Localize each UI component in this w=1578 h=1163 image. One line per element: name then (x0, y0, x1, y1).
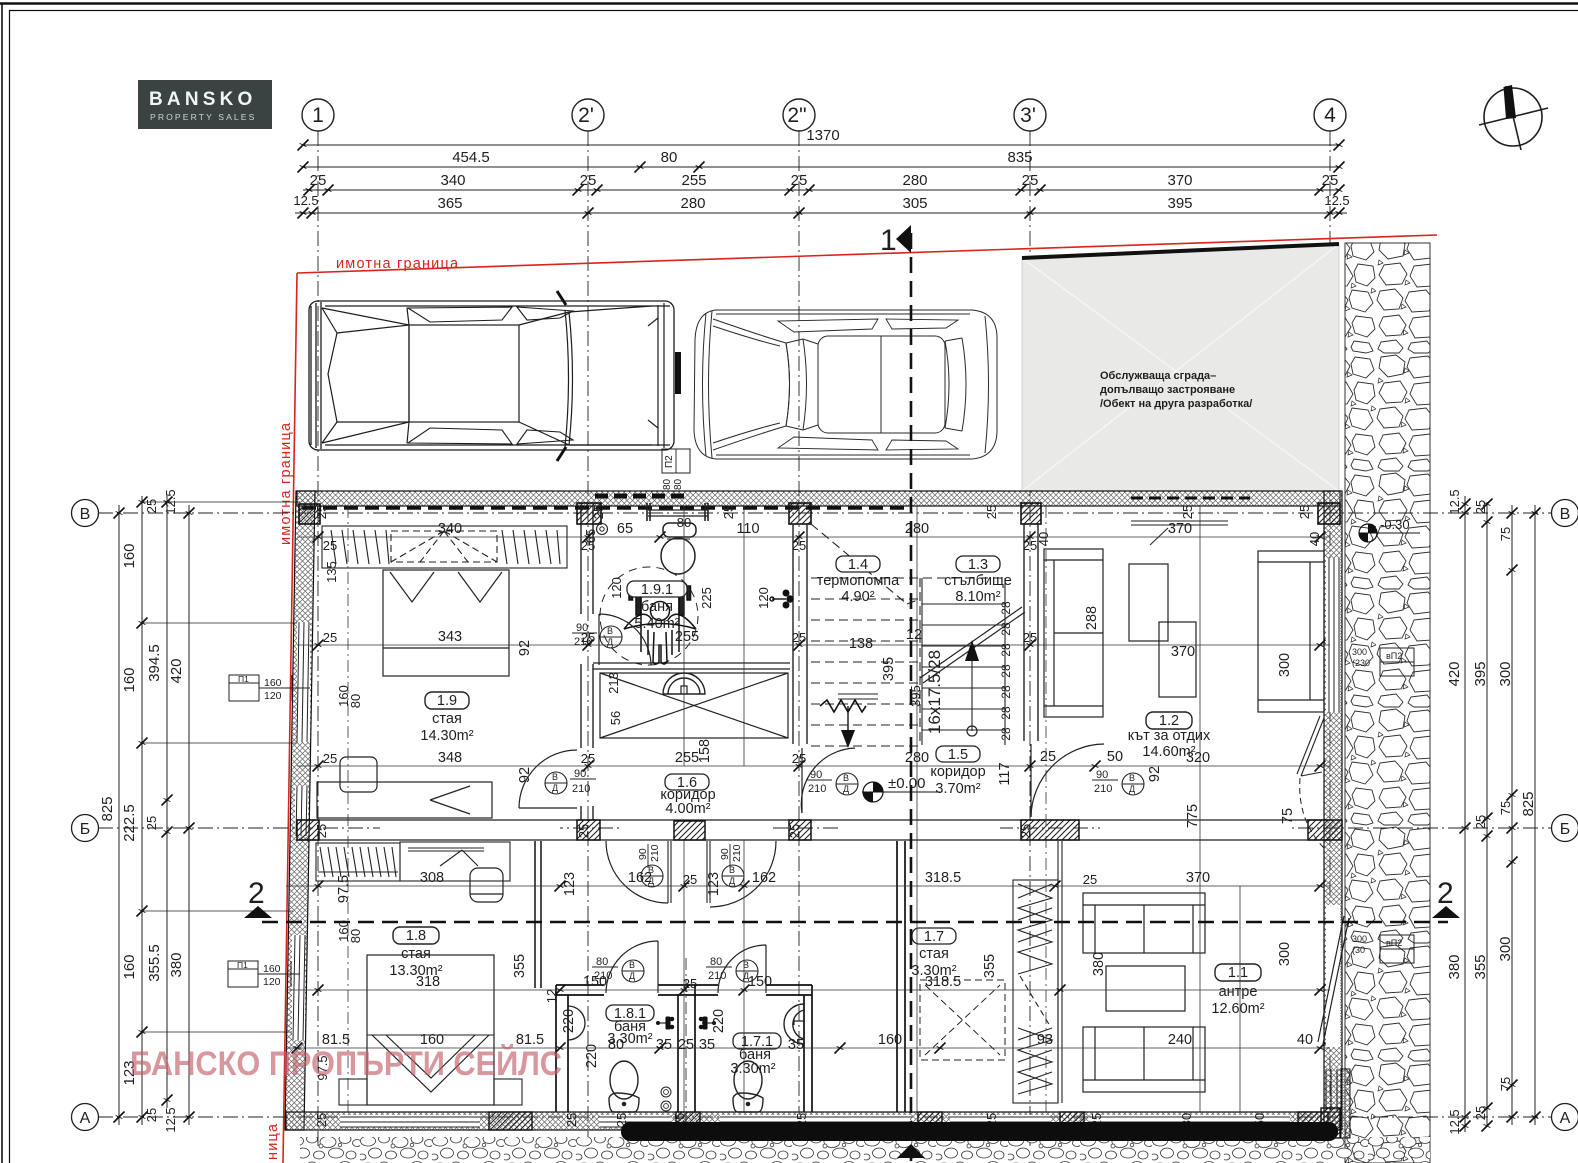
svg-text:В: В (1129, 773, 1135, 783)
svg-text:75: 75 (1498, 527, 1513, 541)
svg-text:3': 3' (1020, 104, 1036, 127)
svg-text:25: 25 (721, 505, 736, 519)
svg-text:825: 825 (99, 796, 116, 821)
svg-text:ница: ница (265, 1123, 281, 1160)
svg-text:210: 210 (808, 783, 826, 795)
svg-text:305: 305 (902, 195, 927, 212)
svg-text:25: 25 (678, 1037, 694, 1053)
svg-text:255: 255 (675, 750, 699, 766)
svg-text:380: 380 (1446, 954, 1463, 979)
svg-text:В: В (1560, 506, 1571, 523)
svg-text:25: 25 (1083, 872, 1097, 887)
svg-text:160: 160 (263, 963, 281, 975)
svg-text:25: 25 (1022, 172, 1039, 189)
svg-text:75: 75 (1498, 1077, 1513, 1091)
svg-text:В: В (80, 506, 91, 523)
svg-text:162: 162 (752, 870, 776, 886)
svg-text:775: 775 (1185, 804, 1201, 828)
svg-text:28: 28 (999, 601, 1013, 615)
svg-text:12.5: 12.5 (1447, 489, 1462, 514)
svg-text:210: 210 (1094, 783, 1112, 795)
svg-text:1.9: 1.9 (437, 693, 457, 709)
svg-text:80: 80 (608, 1037, 624, 1053)
svg-text:25: 25 (310, 172, 327, 189)
svg-text:25: 25 (791, 172, 808, 189)
svg-text:В: В (552, 772, 558, 782)
svg-text:25: 25 (323, 630, 337, 645)
svg-text:стълбище: стълбище (944, 573, 1012, 589)
svg-text:395: 395 (1167, 195, 1192, 212)
svg-text:25: 25 (581, 630, 595, 645)
svg-text:162: 162 (628, 870, 652, 886)
svg-text:антре: антре (1219, 984, 1258, 1000)
svg-text:1.8: 1.8 (406, 928, 426, 944)
svg-text:25: 25 (1023, 538, 1037, 553)
svg-text:210: 210 (572, 783, 590, 795)
svg-text:120: 120 (263, 976, 281, 988)
svg-text:А: А (80, 1110, 91, 1127)
svg-text:355.5: 355.5 (146, 944, 163, 982)
svg-text:термопомпа: термопомпа (817, 573, 900, 589)
svg-text:160: 160 (878, 1032, 902, 1048)
svg-text:12.5: 12.5 (293, 193, 318, 208)
svg-text:340: 340 (438, 521, 462, 537)
svg-text:138: 138 (849, 636, 873, 652)
svg-text:255: 255 (681, 172, 706, 189)
svg-text:25: 25 (580, 172, 597, 189)
svg-text:стая: стая (432, 711, 462, 727)
svg-text:210: 210 (731, 844, 743, 862)
svg-text:40: 40 (1036, 532, 1051, 546)
svg-text:В: В (607, 626, 613, 636)
svg-text:12.5: 12.5 (1447, 1109, 1462, 1134)
svg-text:255: 255 (675, 629, 699, 645)
svg-text:300: 300 (1497, 936, 1514, 961)
svg-text:допълващо застрояване: допълващо застрояване (1100, 384, 1235, 396)
svg-text:Б: Б (1560, 821, 1571, 838)
svg-text:300: 300 (1277, 653, 1293, 677)
svg-text:835: 835 (1007, 149, 1032, 166)
svg-text:120: 120 (756, 587, 771, 609)
svg-text:370: 370 (1186, 870, 1210, 886)
svg-text:16х17.5/28: 16х17.5/28 (925, 650, 944, 734)
svg-text:25: 25 (984, 505, 999, 519)
svg-text:25: 25 (1023, 630, 1037, 645)
svg-text:1.3: 1.3 (968, 557, 988, 573)
svg-text:160: 160 (121, 543, 138, 568)
svg-text:25: 25 (581, 751, 595, 766)
svg-text:вП2: вП2 (1386, 651, 1402, 661)
svg-text:Б: Б (80, 821, 91, 838)
svg-text:365: 365 (437, 195, 462, 212)
svg-text:160: 160 (264, 677, 282, 689)
svg-text:БАНСКО ПРОПЪРТИ СЕЙЛС: БАНСКО ПРОПЪРТИ СЕЙЛС (130, 1044, 562, 1083)
svg-text:4.00m²: 4.00m² (665, 801, 710, 817)
svg-text:135: 135 (324, 561, 339, 583)
svg-text:280: 280 (905, 521, 929, 537)
svg-text:300: 300 (1352, 647, 1367, 657)
svg-text:35: 35 (656, 1037, 672, 1053)
svg-text:355: 355 (1472, 954, 1489, 979)
svg-text:210: 210 (708, 970, 726, 982)
svg-text:80: 80 (661, 149, 678, 166)
svg-text:4: 4 (1324, 104, 1336, 127)
svg-text:стая: стая (919, 946, 949, 962)
svg-text:280: 280 (902, 172, 927, 189)
svg-text:28: 28 (999, 685, 1013, 699)
svg-text:80: 80 (710, 956, 722, 968)
svg-text:97.5: 97.5 (336, 875, 352, 903)
svg-text:1.9.1: 1.9.1 (641, 582, 673, 598)
svg-text:25: 25 (314, 505, 329, 519)
svg-text:имотна граница: имотна граница (336, 256, 459, 272)
svg-text:25: 25 (1018, 824, 1033, 838)
svg-text:25: 25 (144, 816, 159, 830)
svg-text:1.2: 1.2 (1159, 713, 1179, 729)
svg-text:28: 28 (999, 727, 1013, 741)
svg-text:35: 35 (788, 1037, 804, 1053)
svg-text:420: 420 (1446, 661, 1463, 686)
svg-text:92: 92 (517, 767, 533, 783)
svg-text:стая: стая (401, 946, 431, 962)
svg-text:220: 220 (711, 1009, 727, 1033)
svg-text:120: 120 (264, 690, 282, 702)
svg-text:кът за отдих: кът за отдих (1128, 728, 1211, 744)
svg-text:25: 25 (314, 824, 329, 838)
svg-text:25: 25 (787, 824, 802, 838)
svg-text:25: 25 (792, 630, 806, 645)
svg-text:395: 395 (1472, 661, 1489, 686)
svg-text:355: 355 (982, 954, 998, 978)
svg-text:320: 320 (1186, 750, 1210, 766)
svg-text:92: 92 (1147, 766, 1163, 782)
svg-text:25: 25 (1473, 1106, 1488, 1120)
svg-text:1370: 1370 (806, 127, 839, 144)
svg-text:370: 370 (1171, 644, 1195, 660)
svg-text:25: 25 (144, 1108, 159, 1122)
svg-text:80: 80 (348, 694, 363, 708)
svg-text:355: 355 (512, 954, 528, 978)
svg-text:150: 150 (748, 974, 772, 990)
svg-text:300: 300 (1352, 934, 1367, 944)
svg-text:222.5: 222.5 (121, 804, 138, 842)
svg-text:3.70m²: 3.70m² (935, 781, 980, 797)
svg-text:150: 150 (583, 974, 607, 990)
svg-text:В: В (843, 773, 849, 783)
svg-text:50: 50 (1107, 749, 1123, 765)
svg-text:308: 308 (420, 870, 444, 886)
svg-text:420: 420 (168, 658, 185, 683)
svg-text:120: 120 (609, 577, 624, 599)
svg-text:25: 25 (792, 751, 806, 766)
svg-text:123: 123 (706, 872, 722, 896)
svg-text:25: 25 (581, 538, 595, 553)
svg-text:Д: Д (729, 876, 735, 886)
svg-text:1: 1 (880, 224, 897, 257)
svg-text:158: 158 (697, 739, 713, 763)
svg-text:90: 90 (1096, 769, 1108, 781)
svg-text:Обслужваща сграда–: Обслужваща сграда– (1100, 370, 1216, 382)
svg-text:12.5: 12.5 (1324, 193, 1349, 208)
svg-text:имотна граница: имотна граница (278, 422, 294, 545)
svg-text:баня: баня (641, 599, 673, 615)
svg-text:343: 343 (438, 629, 462, 645)
svg-text:220: 220 (561, 1009, 577, 1033)
svg-text:123: 123 (562, 872, 578, 896)
svg-text:370: 370 (1168, 521, 1192, 537)
svg-text:1.7: 1.7 (924, 929, 944, 945)
svg-text:П1: П1 (238, 674, 249, 684)
svg-text:12: 12 (906, 627, 922, 643)
svg-text:28: 28 (999, 706, 1013, 720)
svg-text:160: 160 (121, 954, 138, 979)
svg-text:2: 2 (248, 877, 265, 910)
svg-text:160: 160 (121, 667, 138, 692)
svg-text:Д: Д (607, 637, 613, 647)
svg-text:240: 240 (1168, 1032, 1192, 1048)
svg-text:25: 25 (144, 499, 159, 513)
svg-text:65: 65 (617, 521, 633, 537)
svg-text:25: 25 (792, 538, 806, 553)
svg-text:25: 25 (1180, 505, 1195, 519)
svg-text:±0.00: ±0.00 (888, 775, 925, 792)
svg-text:В: В (729, 865, 735, 875)
svg-text:4.90²: 4.90² (841, 589, 874, 605)
svg-text:2': 2' (578, 104, 594, 127)
svg-text:40: 40 (1307, 532, 1322, 546)
svg-text:288: 288 (1084, 606, 1100, 630)
svg-text:90: 90 (810, 769, 822, 781)
svg-text:25: 25 (1322, 172, 1339, 189)
svg-text:2: 2 (1437, 877, 1454, 910)
svg-text:318.5: 318.5 (925, 870, 961, 886)
svg-text:280: 280 (905, 750, 929, 766)
svg-text:12.5: 12.5 (163, 489, 178, 514)
svg-text:75: 75 (1280, 808, 1296, 824)
svg-text:Д: Д (629, 971, 635, 981)
svg-text:318.5: 318.5 (925, 974, 961, 990)
svg-text:25: 25 (1297, 505, 1312, 519)
svg-text:3.30m²: 3.30m² (730, 1061, 775, 1077)
svg-text:Д: Д (843, 784, 849, 794)
svg-text:П1: П1 (237, 960, 248, 970)
svg-text:-0.30: -0.30 (1380, 517, 1410, 532)
svg-text:коридор: коридор (930, 764, 985, 780)
svg-text:PROPERTY SALES: PROPERTY SALES (150, 112, 256, 122)
svg-text:28: 28 (999, 622, 1013, 636)
svg-text:394.5: 394.5 (146, 644, 163, 682)
svg-text:75: 75 (1498, 801, 1513, 815)
svg-text:(30: (30 (1352, 945, 1365, 955)
svg-text:454.5: 454.5 (452, 149, 490, 166)
svg-text:220: 220 (584, 1044, 600, 1068)
svg-text:1.1: 1.1 (1228, 965, 1248, 981)
svg-text:380: 380 (168, 952, 185, 977)
svg-text:825: 825 (1520, 791, 1537, 816)
svg-text:1: 1 (312, 104, 324, 127)
svg-text:110: 110 (736, 521, 759, 537)
svg-text:80: 80 (596, 956, 608, 968)
svg-text:280: 280 (680, 195, 705, 212)
svg-text:25: 25 (314, 1113, 329, 1127)
svg-text:28: 28 (999, 643, 1013, 657)
svg-text:/Обект на друга разработка/: /Обект на друга разработка/ (1100, 398, 1252, 410)
svg-text:Д: Д (552, 783, 558, 793)
svg-text:318: 318 (416, 974, 440, 990)
svg-text:25: 25 (683, 872, 697, 887)
svg-text:80: 80 (348, 929, 363, 943)
svg-text:12.60m²: 12.60m² (1211, 1001, 1264, 1017)
svg-text:92: 92 (517, 640, 533, 656)
svg-text:(230: (230 (1352, 658, 1370, 668)
svg-text:25: 25 (683, 976, 697, 991)
svg-text:300: 300 (1497, 661, 1514, 686)
svg-text:340: 340 (440, 172, 465, 189)
svg-text:56: 56 (608, 711, 623, 725)
svg-text:348: 348 (438, 750, 462, 766)
svg-text:25: 25 (323, 751, 337, 766)
svg-text:380: 380 (1091, 952, 1107, 976)
svg-text:25: 25 (1473, 815, 1488, 829)
svg-text:25: 25 (576, 824, 591, 838)
svg-text:80: 80 (677, 515, 691, 530)
svg-text:25: 25 (1040, 749, 1056, 765)
svg-text:25: 25 (323, 538, 337, 553)
svg-text:2": 2" (787, 104, 806, 127)
svg-text:Д: Д (1129, 784, 1135, 794)
svg-text:5.40m²: 5.40m² (634, 616, 679, 632)
svg-text:370: 370 (1167, 172, 1192, 189)
svg-text:1.4: 1.4 (848, 557, 868, 573)
svg-text:12.5: 12.5 (163, 1107, 178, 1132)
svg-text:25: 25 (564, 1113, 579, 1127)
svg-text:1.5: 1.5 (948, 747, 968, 763)
svg-text:210: 210 (649, 844, 661, 862)
svg-text:14.30m²: 14.30m² (420, 728, 473, 744)
svg-text:А: А (1560, 1110, 1571, 1127)
svg-text:117: 117 (997, 762, 1013, 785)
svg-text:В: В (629, 960, 635, 970)
svg-text:93: 93 (1037, 1032, 1053, 1048)
svg-text:12: 12 (544, 989, 559, 1003)
svg-text:213: 213 (606, 672, 621, 694)
svg-text:25: 25 (591, 505, 606, 519)
svg-text:25: 25 (1473, 500, 1488, 514)
svg-text:8.10m²: 8.10m² (955, 589, 1000, 605)
svg-text:80: 80 (673, 478, 684, 490)
svg-text:35: 35 (699, 1037, 715, 1053)
svg-text:90: 90 (719, 848, 731, 860)
svg-text:300: 300 (1277, 942, 1293, 966)
svg-text:80: 80 (662, 478, 673, 490)
svg-text:BANSKO: BANSKO (149, 89, 257, 110)
svg-text:225: 225 (699, 587, 714, 609)
svg-text:28: 28 (999, 664, 1013, 678)
svg-text:90: 90 (637, 848, 649, 860)
svg-text:П2: П2 (664, 455, 675, 468)
svg-text:40: 40 (1297, 1032, 1313, 1048)
svg-text:395: 395 (881, 657, 897, 681)
svg-text:вП2: вП2 (1386, 938, 1402, 948)
